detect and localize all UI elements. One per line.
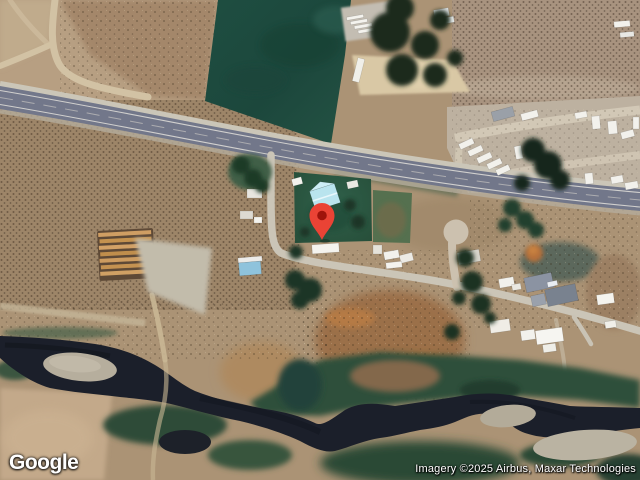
map-canvas[interactable]: Google Imagery ©2025 Airbus, Maxar Techn… [0, 0, 640, 480]
map-attribution: Imagery ©2025 Airbus, Maxar Technologies [415, 463, 636, 475]
google-logo[interactable]: Google [9, 451, 78, 475]
pin-inner-dot [317, 211, 327, 221]
river-pool [159, 430, 211, 454]
satellite-imagery [0, 0, 640, 480]
